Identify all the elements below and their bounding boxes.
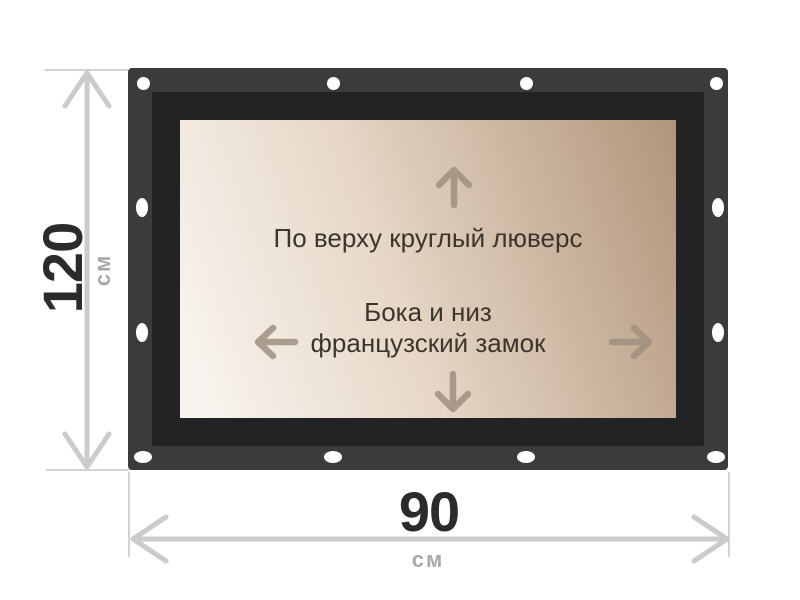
center-note-line2: французский замок [180,328,676,359]
down-arrow-icon [430,370,476,418]
grommet-icon [324,451,342,463]
panel-inner-border: По верху круглый люверс Бока и низ франц… [152,92,704,446]
grommet-icon [134,451,152,463]
grommet-icon [136,198,148,217]
center-note-line1: Бока и низ [180,297,676,328]
grommet-icon [517,451,535,463]
grommet-icon [520,77,533,90]
grommet-icon [137,77,150,90]
grommet-icon [327,77,340,90]
fabric-panel: По верху круглый люверс Бока и низ франц… [180,120,676,418]
grommet-icon [707,451,725,463]
dimension-diagram: По верху круглый люверс Бока и низ франц… [0,0,800,600]
grommet-icon [136,323,148,342]
grommet-icon [710,77,723,90]
grommet-icon [712,198,724,217]
right-arrow-icon [608,322,656,362]
top-note: По верху круглый люверс [180,222,676,254]
center-note: Бока и низ французский замок [180,297,676,359]
height-unit: см [73,240,133,300]
product-frame: По верху круглый люверс Бока и низ франц… [128,68,728,470]
width-unit: см [388,546,468,574]
grommet-icon [712,323,724,342]
width-value: 90 [349,483,509,539]
up-arrow-icon [431,162,477,209]
